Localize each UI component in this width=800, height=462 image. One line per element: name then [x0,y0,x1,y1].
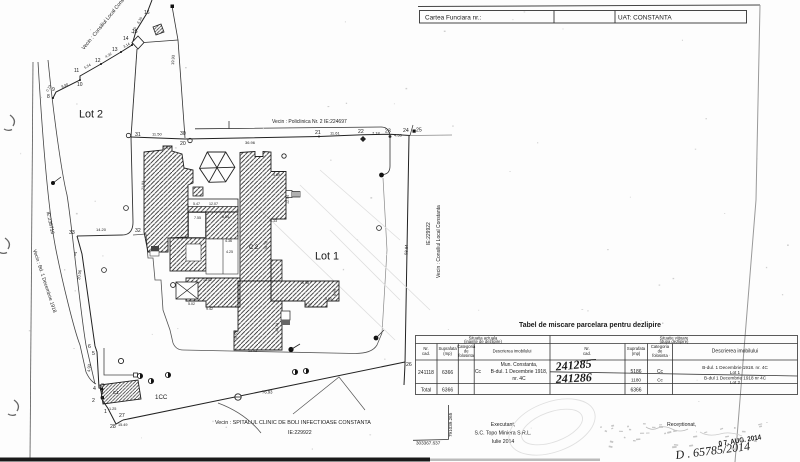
svg-text:10.51: 10.51 [234,331,238,340]
svg-text:(mp): (mp) [632,351,641,356]
svg-text:14.20: 14.20 [96,227,107,232]
svg-text:241118: 241118 [418,370,434,376]
svg-text:303367.637: 303367.637 [416,441,441,446]
svg-text:10: 10 [77,82,83,88]
svg-text:6366: 6366 [442,388,453,394]
svg-text:Cc: Cc [475,369,482,375]
svg-text:31: 31 [135,132,141,138]
svg-text:4.33: 4.33 [270,219,277,223]
svg-text:Lot 1: Lot 1 [730,370,741,375]
svg-text:4.25: 4.25 [226,250,233,254]
svg-text:Descrierea imobilului: Descrierea imobilului [712,349,758,355]
svg-text:1.93: 1.93 [163,146,170,150]
svg-text:(mp): (mp) [443,351,452,356]
svg-text:241286: 241286 [554,370,592,386]
svg-text:9: 9 [52,87,55,93]
svg-text:UAT: CONSTANTA: UAT: CONSTANTA [618,15,672,22]
svg-text:36.96: 36.96 [245,140,256,145]
svg-text:1: 1 [104,409,107,415]
svg-text:22: 22 [358,129,364,135]
svg-text:13.05: 13.05 [248,349,257,353]
svg-text:30: 30 [180,131,186,137]
svg-text:1180: 1180 [631,378,641,383]
svg-text:6: 6 [88,344,91,350]
svg-text:5: 5 [92,351,95,357]
svg-text:19.76: 19.76 [264,241,268,250]
svg-text:4.53: 4.53 [394,133,403,138]
svg-text:20: 20 [180,141,186,147]
svg-text:16: 16 [144,10,150,16]
svg-text:7.55: 7.55 [194,216,201,220]
svg-text:12: 12 [95,58,101,64]
svg-text:2: 2 [92,398,95,404]
svg-text:13: 13 [112,47,118,53]
svg-text:19.93: 19.93 [170,54,176,65]
svg-text:cad.: cad. [422,351,430,356]
svg-text:5.47: 5.47 [193,202,200,206]
svg-text:27: 27 [119,413,125,419]
svg-text:Total: Total [421,388,432,394]
svg-text:24: 24 [403,128,409,134]
svg-text:13.79: 13.79 [275,323,279,332]
svg-text:IE:229922: IE:229922 [288,430,312,436]
svg-text:C 2: C 2 [249,245,259,251]
svg-text:12.84: 12.84 [286,195,290,204]
svg-text:Descrierea imobilului: Descrierea imobilului [493,349,532,354]
svg-text:21.83: 21.83 [141,181,145,190]
svg-text:14: 14 [123,36,129,42]
svg-text:S.C. Topo Miniera S.R.L.: S.C. Topo Miniera S.R.L. [475,431,532,437]
svg-text:4.89: 4.89 [273,173,280,177]
svg-text:folosinta: folosinta [458,353,474,358]
svg-text:26: 26 [406,362,412,368]
svg-text:9.37: 9.37 [305,303,312,307]
svg-text:C1: C1 [113,390,119,395]
svg-text:14.02: 14.02 [203,278,212,282]
svg-text:Vecin : SPITALUL CLINIC DE BOL: Vecin : SPITALUL CLINIC DE BOLI INFECTIO… [215,420,371,426]
svg-text:5186: 5186 [630,369,641,375]
svg-text:33: 33 [69,230,75,236]
svg-text:6366: 6366 [630,388,641,394]
svg-text:nr. 4C: nr. 4C [512,376,526,382]
svg-text:14.98: 14.98 [300,281,309,285]
svg-text:Mun. Constanta,: Mun. Constanta, [501,362,538,368]
svg-text:1.25: 1.25 [109,407,116,411]
svg-text:Cartea Funciara nr.:: Cartea Funciara nr.: [425,15,482,22]
svg-text:Lot 1: Lot 1 [315,251,339,263]
svg-text:5.02: 5.02 [188,302,195,306]
svg-text:76.93: 76.93 [262,390,273,395]
svg-text:4.93: 4.93 [86,363,92,372]
svg-text:8.85: 8.85 [333,289,337,296]
svg-text:21: 21 [315,130,321,136]
svg-text:11: 11 [74,68,79,74]
svg-text:7.18: 7.18 [372,131,381,136]
svg-text:5.90: 5.90 [325,297,332,301]
svg-text:folosinta: folosinta [652,353,668,358]
svg-text:cad.: cad. [583,351,591,356]
svg-text:Vecin : Policlinica Nr. 2 IE:: Vecin : Policlinica Nr. 2 IE:224697 [272,119,347,125]
svg-text:12.07: 12.07 [209,202,218,206]
svg-text:8.94: 8.94 [222,215,229,219]
svg-text:Lot 2: Lot 2 [79,109,103,121]
svg-text:28: 28 [110,424,116,430]
svg-text:58.84: 58.84 [404,244,409,255]
svg-text:Cc: Cc [657,369,664,375]
svg-text:Iulie 2014: Iulie 2014 [492,439,515,445]
svg-text:Lot 2: Lot 2 [730,380,741,385]
svg-text:8: 8 [47,94,50,100]
svg-text:32: 32 [135,228,141,234]
svg-text:4: 4 [93,386,96,392]
svg-text:Tabel de miscare parcelara pen: Tabel de miscare parcelara pentru dezlip… [519,320,661,329]
svg-text:15.49: 15.49 [118,423,128,427]
svg-text:Vecin : Consiliul Local Consta: Vecin : Consiliul Local Constanta [436,205,442,278]
svg-text:791039.265: 791039.265 [448,412,453,437]
svg-text:IE:229922: IE:229922 [426,222,432,245]
svg-text:7: 7 [74,252,77,258]
svg-text:Cc: Cc [657,378,663,383]
svg-text:B-dul. 1 Decembrie 1918,: B-dul. 1 Decembrie 1918, [491,369,548,375]
svg-text:4.36: 4.36 [225,239,232,243]
svg-text:11.50: 11.50 [152,132,162,137]
svg-text:11.61: 11.61 [330,131,340,136]
svg-text:25: 25 [416,128,422,134]
svg-text:1CC: 1CC [155,394,168,401]
svg-text:9.42: 9.42 [206,307,213,311]
svg-text:6366: 6366 [442,370,453,376]
